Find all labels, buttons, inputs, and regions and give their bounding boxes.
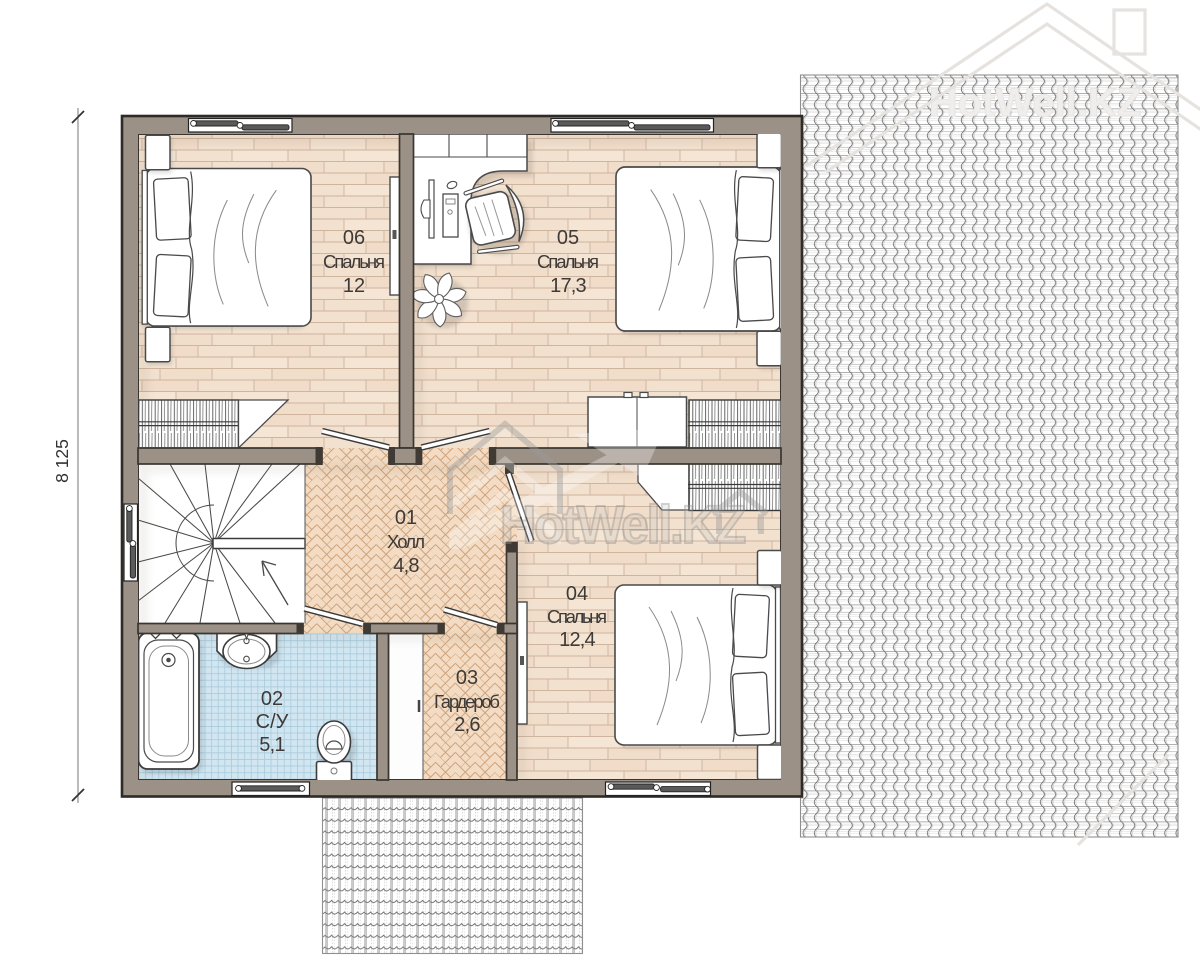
svg-text:Спальня: Спальня — [537, 251, 599, 272]
svg-text:03: 03 — [456, 667, 478, 689]
svg-text:12,4: 12,4 — [559, 629, 595, 651]
svg-text:04: 04 — [566, 583, 588, 605]
svg-text:02: 02 — [261, 688, 283, 710]
svg-text:HotWell.KZ: HotWell.KZ — [500, 495, 745, 555]
svg-text:12: 12 — [343, 275, 365, 297]
svg-text:17,3: 17,3 — [550, 275, 586, 297]
svg-text:05: 05 — [557, 227, 579, 249]
svg-text:06: 06 — [343, 227, 365, 249]
svg-text:С/У: С/У — [256, 711, 289, 733]
svg-text:5,1: 5,1 — [259, 734, 285, 756]
svg-text:8 125: 8 125 — [52, 439, 72, 483]
svg-text:Холл: Холл — [387, 531, 425, 552]
svg-text:Спальня: Спальня — [323, 251, 385, 272]
svg-text:2,6: 2,6 — [454, 714, 480, 736]
svg-text:01: 01 — [395, 507, 417, 529]
svg-text:Гардероб: Гардероб — [434, 691, 500, 712]
svg-text:HotWell.KZ: HotWell.KZ — [929, 81, 1142, 125]
svg-text:Спальня: Спальня — [547, 606, 607, 627]
svg-text:4,8: 4,8 — [393, 555, 419, 577]
